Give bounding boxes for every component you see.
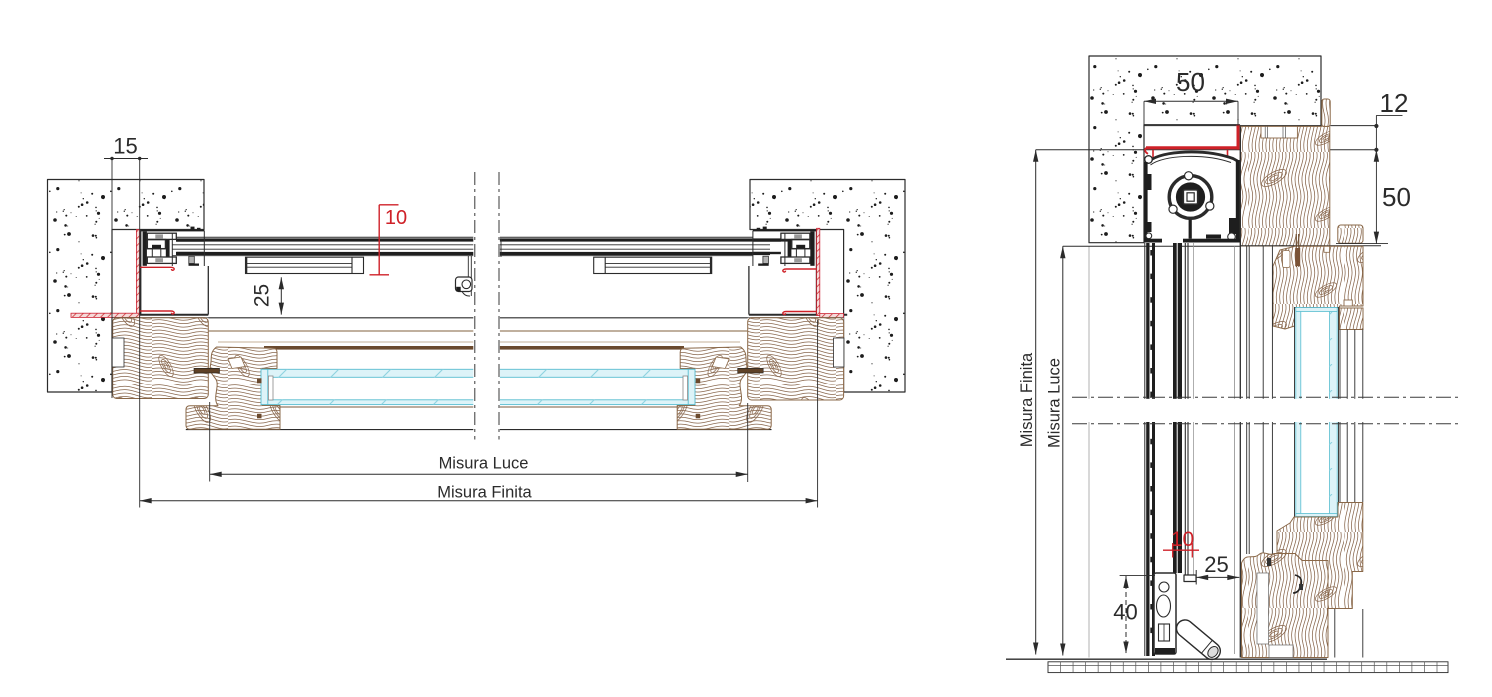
svg-text:10: 10 [1171, 528, 1194, 551]
svg-text:10: 10 [385, 207, 407, 229]
svg-text:40: 40 [1113, 600, 1137, 625]
svg-text:50: 50 [1382, 182, 1411, 212]
svg-text:12: 12 [1380, 88, 1409, 118]
svg-text:Misura Luce: Misura Luce [1046, 358, 1064, 448]
svg-text:Misura Luce: Misura Luce [439, 455, 529, 473]
svg-text:Misura Finita: Misura Finita [1018, 352, 1036, 447]
svg-text:50: 50 [1176, 67, 1205, 97]
svg-text:15: 15 [113, 134, 137, 159]
svg-text:25: 25 [251, 284, 274, 307]
svg-text:Misura Finita: Misura Finita [437, 484, 532, 502]
svg-text:25: 25 [1204, 552, 1228, 577]
